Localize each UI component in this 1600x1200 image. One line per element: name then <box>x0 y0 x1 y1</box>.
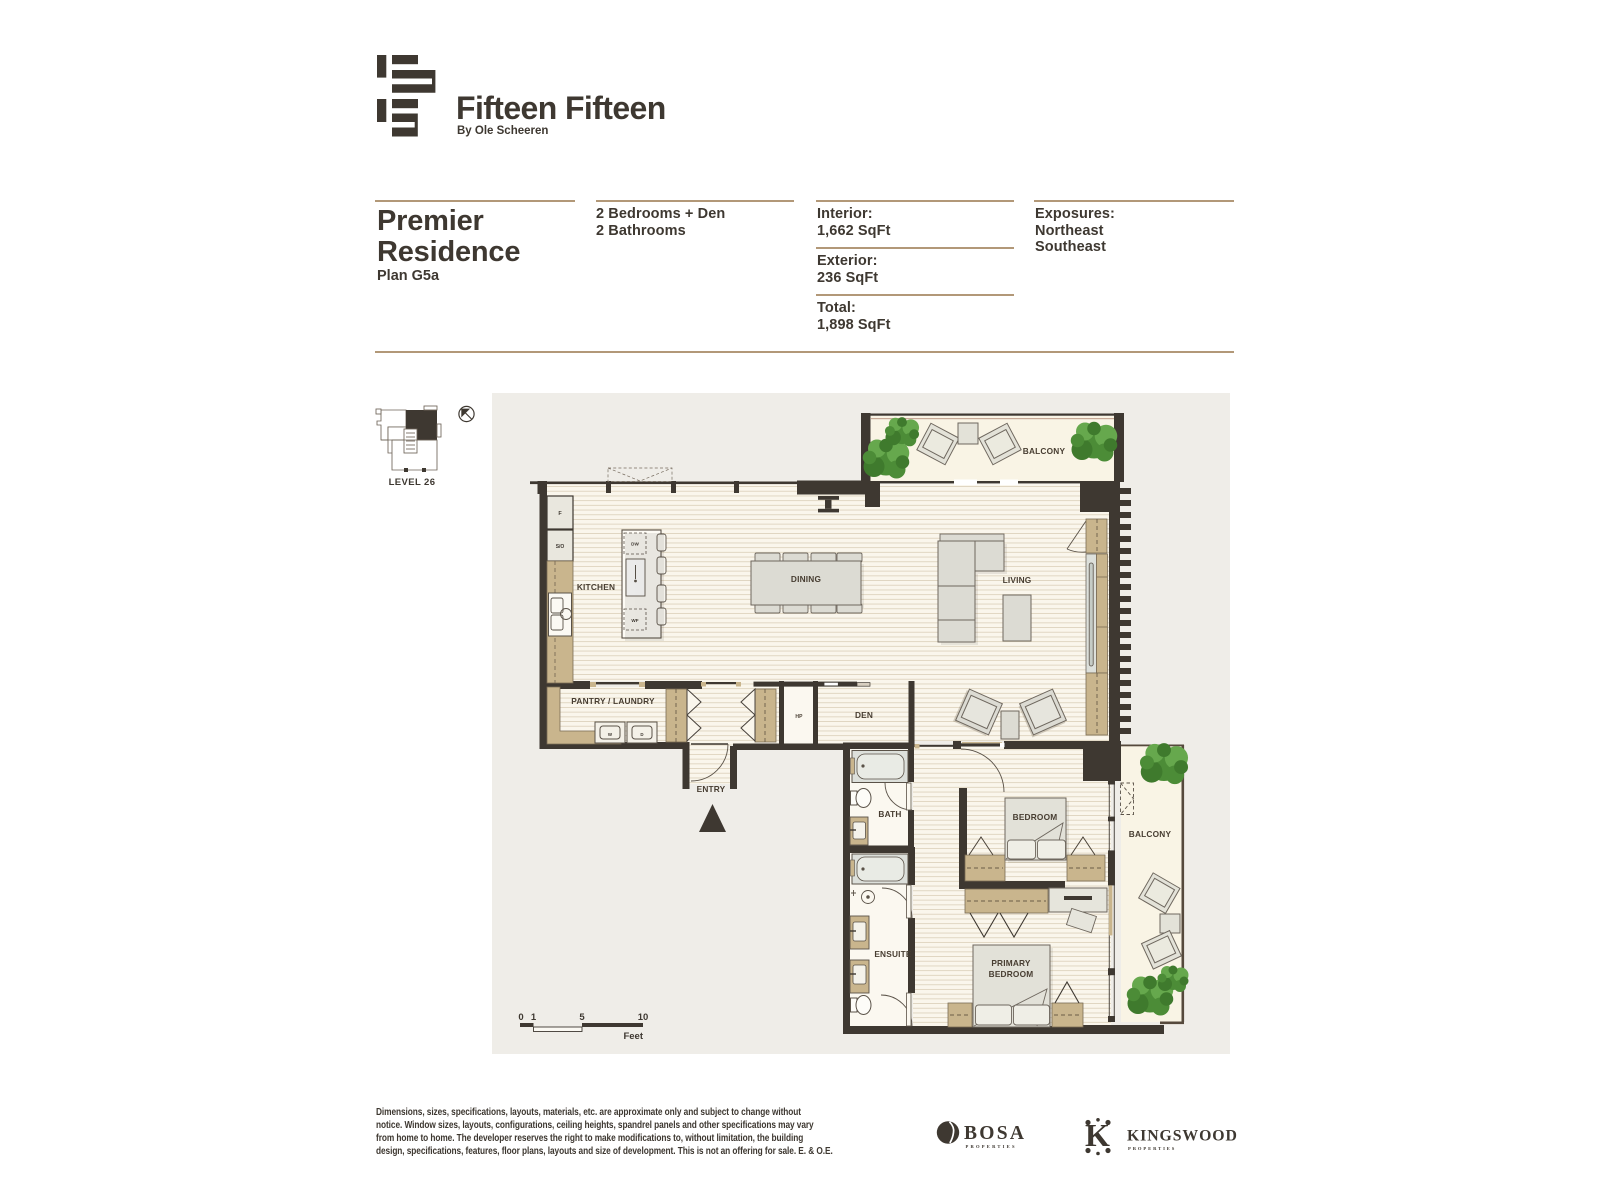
svg-text:S/O: S/O <box>556 544 565 550</box>
svg-text:DEN: DEN <box>855 710 873 720</box>
svg-text:BEDROOM: BEDROOM <box>989 969 1034 979</box>
svg-text:D: D <box>640 732 643 737</box>
svg-text:BEDROOM: BEDROOM <box>1013 812 1058 822</box>
svg-text:5: 5 <box>579 1012 585 1023</box>
svg-text:KINGSWOOD: KINGSWOOD <box>1127 1128 1238 1145</box>
svg-text:BALCONY: BALCONY <box>1129 829 1172 839</box>
svg-text:HP: HP <box>795 714 803 720</box>
svg-text:DINING: DINING <box>791 574 821 584</box>
svg-text:ENSUITE: ENSUITE <box>874 949 912 959</box>
svg-text:LEVEL 26: LEVEL 26 <box>389 477 436 488</box>
svg-text:0: 0 <box>518 1012 523 1023</box>
svg-text:PANTRY / LAUNDRY: PANTRY / LAUNDRY <box>571 696 655 706</box>
svg-text:KITCHEN: KITCHEN <box>577 582 615 592</box>
svg-text:LIVING: LIVING <box>1003 575 1032 585</box>
svg-text:BALCONY: BALCONY <box>1023 446 1066 456</box>
svg-text:PRIMARY: PRIMARY <box>991 958 1031 968</box>
svg-text:PROPERTIES: PROPERTIES <box>966 1144 1017 1149</box>
svg-text:PROPERTIES: PROPERTIES <box>1128 1146 1176 1151</box>
svg-text:ENTRY: ENTRY <box>697 784 726 794</box>
svg-text:BATH: BATH <box>878 809 901 819</box>
svg-text:10: 10 <box>638 1012 649 1023</box>
svg-text:1: 1 <box>531 1012 537 1023</box>
svg-text:BOSA: BOSA <box>964 1123 1026 1144</box>
svg-text:Feet: Feet <box>623 1031 643 1042</box>
